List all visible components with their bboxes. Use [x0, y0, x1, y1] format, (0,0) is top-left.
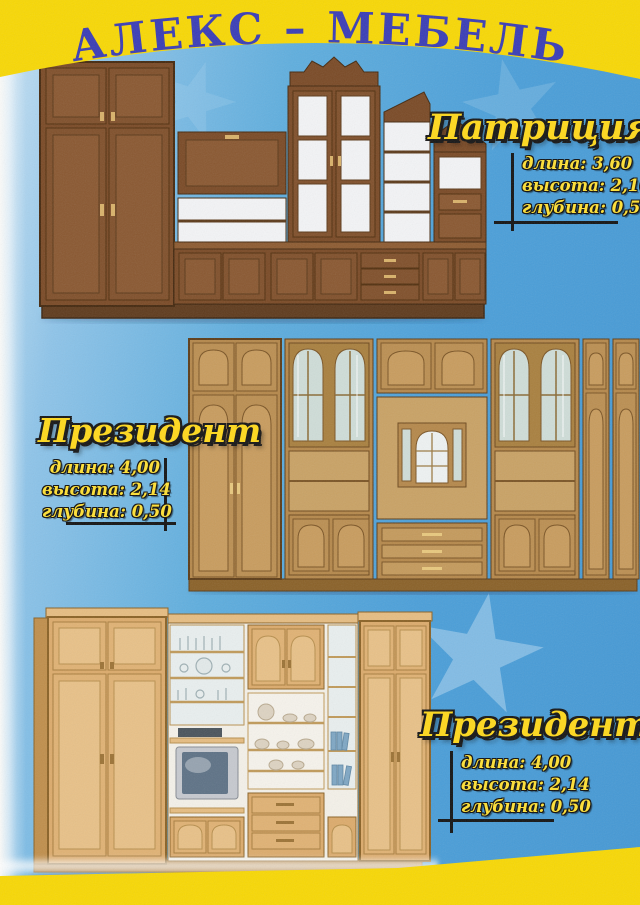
spec-bracket-vertical	[511, 153, 514, 231]
spec-length: длина: 3,60	[522, 153, 640, 175]
footer-band-shape	[0, 847, 640, 905]
product-title-president2: Президент-2	[420, 708, 640, 744]
president-wall-unit-photo	[185, 333, 640, 595]
header-band: АЛЕКС – МЕБЕЛЬ	[0, 0, 640, 92]
footer-band	[0, 835, 640, 905]
patricia-wall-unit-photo	[32, 56, 494, 324]
spec-height: высота: 2,14	[42, 479, 160, 501]
spec-depth: глубина: 0,50	[461, 796, 591, 818]
spec-length: длина: 4,00	[42, 457, 160, 479]
spec-bracket-horizontal	[494, 221, 618, 224]
spec-bracket-horizontal	[438, 819, 554, 822]
product-title-president: Президент	[38, 414, 238, 449]
page-edge-highlight	[0, 0, 26, 905]
spec-depth: глубина: 0,50	[522, 197, 640, 219]
product-specs-president2: длина: 4,00 высота: 2,14 глубина: 0,50	[461, 752, 591, 818]
spec-length: длина: 4,00	[461, 752, 591, 774]
spec-height: высота: 2,14	[461, 774, 591, 796]
product-specs-patricia: длина: 3,60 высота: 2,16 глубина: 0,50	[522, 153, 640, 219]
spec-height: высота: 2,16	[522, 175, 640, 197]
catalog-page: АЛЕКС – МЕБЕЛЬ Патриция длина: 3,60 высо…	[0, 0, 640, 905]
spec-depth: глубина: 0,50	[42, 501, 160, 523]
product-title-patricia: Патриция	[428, 110, 640, 147]
product-specs-president: длина: 4,00 высота: 2,14 глубина: 0,50	[42, 457, 160, 523]
